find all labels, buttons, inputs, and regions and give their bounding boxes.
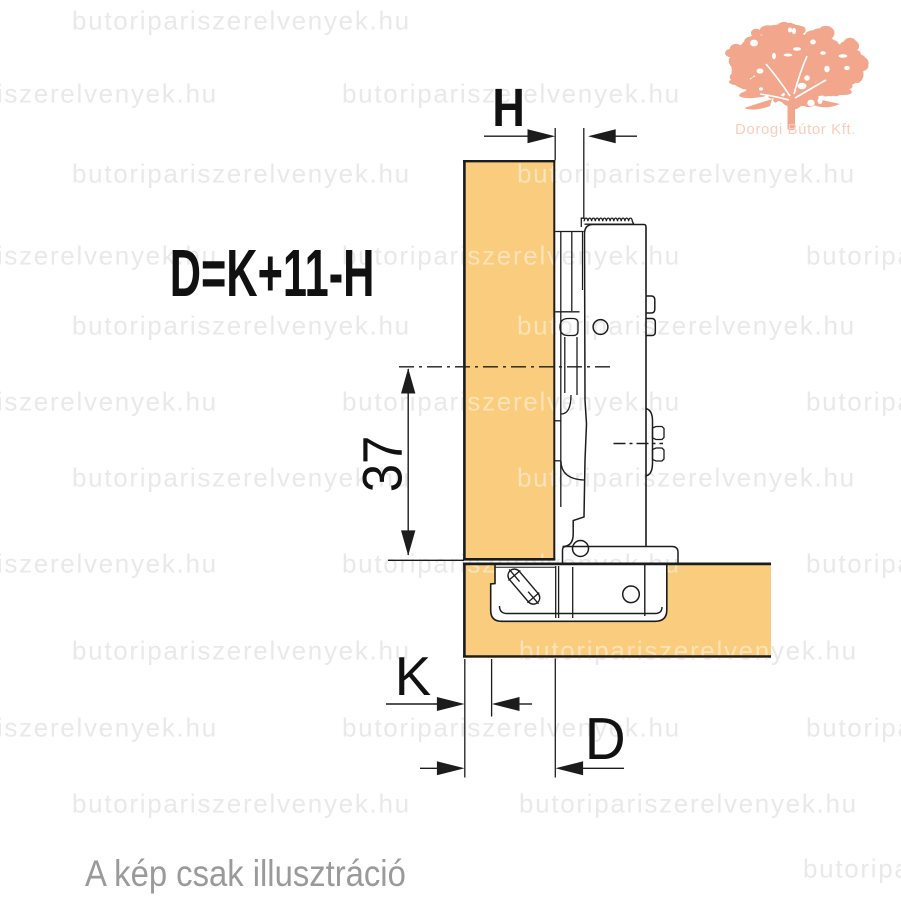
- svg-text:butoripariszerelvenyek.hu: butoripariszerelvenyek.hu: [803, 853, 901, 883]
- svg-text:butoripariszerelvenyek.hu: butoripariszerelvenyek.hu: [342, 712, 681, 742]
- svg-text:butoripariszerelvenyek.hu: butoripariszerelvenyek.hu: [517, 158, 856, 188]
- svg-text:K: K: [395, 646, 431, 707]
- svg-text:butoripariszerelvenyek.hu: butoripariszerelvenyek.hu: [517, 462, 856, 492]
- svg-text:butoripariszerelvenyek.hu: butoripariszerelvenyek.hu: [0, 712, 218, 742]
- svg-text:Dorogi Bútor Kft.: Dorogi Bútor Kft.: [735, 121, 856, 138]
- svg-text:butoripariszerelvenyek.hu: butoripariszerelvenyek.hu: [72, 158, 411, 188]
- svg-text:butoripariszerelvenyek.hu: butoripariszerelvenyek.hu: [806, 712, 901, 742]
- svg-text:A kép csak illusztráció: A kép csak illusztráció: [85, 853, 406, 895]
- svg-text:butoripariszerelvenyek.hu: butoripariszerelvenyek.hu: [0, 386, 218, 416]
- svg-text:H: H: [492, 78, 524, 138]
- svg-text:butoripariszerelvenyek.hu: butoripariszerelvenyek.hu: [72, 635, 411, 665]
- svg-text:butoripariszerelvenyek.hu: butoripariszerelvenyek.hu: [519, 788, 858, 818]
- svg-text:butoripariszerelvenyek.hu: butoripariszerelvenyek.hu: [0, 548, 218, 578]
- svg-text:D: D: [585, 707, 626, 772]
- svg-text:D=K+11-H: D=K+11-H: [170, 235, 375, 310]
- svg-text:butoripariszerelvenyek.hu: butoripariszerelvenyek.hu: [72, 310, 411, 340]
- svg-text:butoripariszerelvenyek.hu: butoripariszerelvenyek.hu: [806, 386, 901, 416]
- svg-text:butoripariszerelvenyek.hu: butoripariszerelvenyek.hu: [806, 548, 901, 578]
- svg-text:37: 37: [352, 436, 414, 493]
- svg-text:butoripariszerelvenyek.hu: butoripariszerelvenyek.hu: [806, 240, 901, 270]
- svg-text:butoripariszerelvenyek.hu: butoripariszerelvenyek.hu: [0, 78, 218, 108]
- svg-text:butoripariszerelvenyek.hu: butoripariszerelvenyek.hu: [72, 5, 411, 35]
- svg-text:butoripariszerelvenyek.hu: butoripariszerelvenyek.hu: [72, 788, 411, 818]
